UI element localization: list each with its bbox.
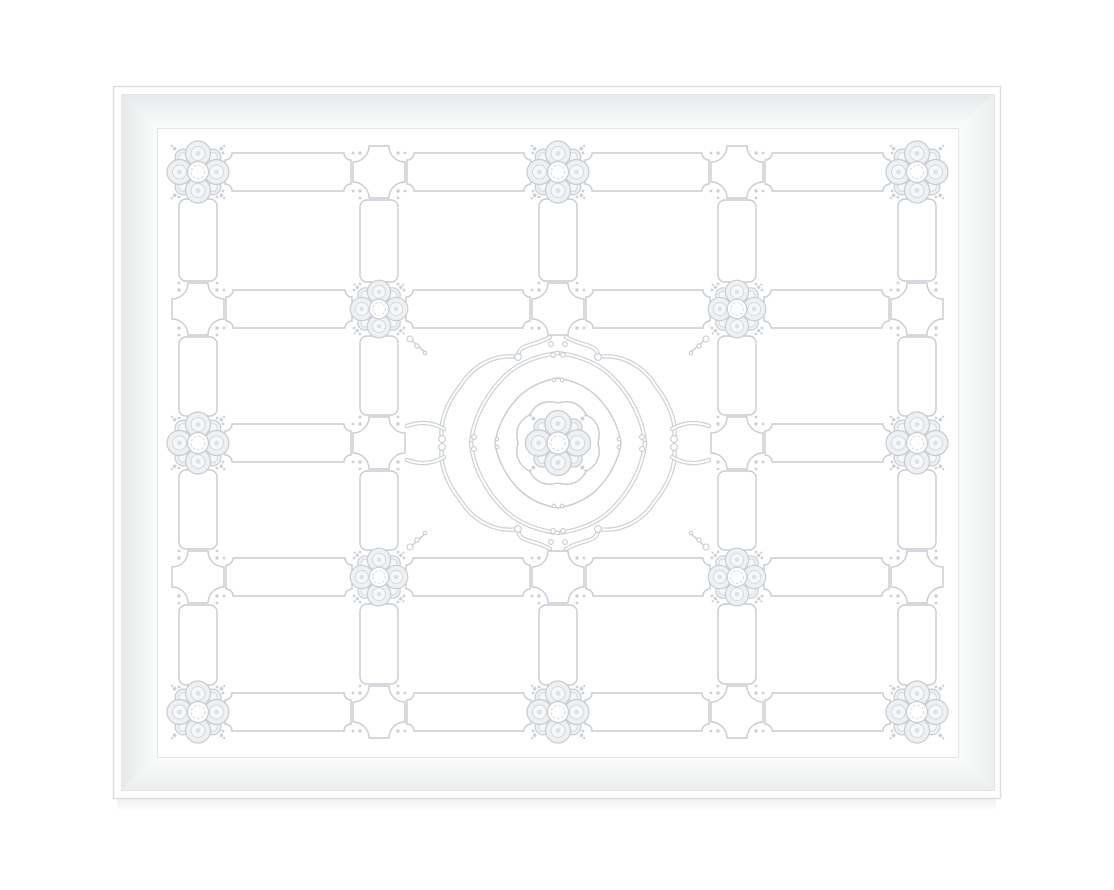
- panel-corner-dot: [359, 685, 362, 688]
- panel-corner-dot: [761, 289, 764, 292]
- panel-corner-dot: [755, 468, 758, 471]
- panel-corner-dot: [353, 289, 356, 292]
- panel-corner-dot: [404, 152, 407, 155]
- panel-horizontal: [765, 693, 890, 731]
- panel-corner-dot: [755, 197, 758, 200]
- panel-corner-dot: [711, 289, 714, 292]
- panel-corner-dot: [711, 327, 714, 330]
- knot-corner-dot: [177, 326, 180, 329]
- knot-corner-dot: [215, 288, 218, 291]
- corner-palmette: [689, 531, 692, 534]
- panel-vertical: [360, 336, 398, 415]
- panel-corner-dot: [531, 557, 534, 560]
- knot-corner-dot: [575, 556, 578, 559]
- panel-corner-dot: [352, 190, 355, 193]
- rosette-petal-dot: [377, 290, 381, 294]
- panel-corner-dot: [890, 327, 893, 330]
- medallion-volute: [551, 529, 556, 534]
- panel-corner-dot: [582, 730, 585, 733]
- panel-corner-dot: [710, 692, 713, 695]
- medallion-volute: [561, 529, 566, 534]
- rosette-petal-dot: [575, 440, 580, 445]
- panel-corner-dot: [352, 461, 355, 464]
- knot-corner-dot: [537, 326, 540, 329]
- rosette-petal-dot: [556, 728, 561, 733]
- panel-corner-dot: [576, 686, 579, 689]
- rosette-small: [707, 279, 768, 340]
- medallion-volute: [551, 353, 556, 358]
- knot-corner-dot: [934, 288, 937, 291]
- panel-corner-dot: [352, 152, 355, 155]
- rosette-petal-dot: [896, 710, 901, 715]
- rosette-petal-dot: [752, 575, 756, 579]
- rosette-petal-dot: [915, 188, 920, 193]
- panel-vertical: [718, 336, 756, 415]
- medallion-volute: [595, 354, 602, 361]
- panel-corner-dot: [717, 333, 720, 336]
- corner-palmette: [407, 544, 413, 550]
- panel-vertical: [718, 604, 756, 684]
- panel-horizontal: [585, 153, 709, 191]
- knot-corner-dot: [754, 189, 757, 192]
- corner-palmette: [689, 351, 692, 354]
- knot-corner-dot: [537, 288, 540, 291]
- panel-corner-dot: [359, 416, 362, 419]
- panel-corner-dot: [222, 692, 225, 695]
- knot-corner-dot: [754, 460, 757, 463]
- panel-corner-dot: [178, 282, 181, 285]
- knot-corner-dot: [896, 594, 899, 597]
- knot-corner-dot: [754, 422, 757, 425]
- medallion-volute: [561, 353, 566, 358]
- rosette-petal-dot: [915, 728, 920, 733]
- rosette-petal-dot: [196, 151, 201, 156]
- medallion-volute: [671, 436, 678, 443]
- medallion-volute: [495, 437, 499, 441]
- medallion-volute: [549, 342, 554, 347]
- panel-corner-dot: [216, 417, 219, 420]
- rosette-petal-dot: [196, 188, 201, 193]
- rosette-petal-dot: [177, 170, 182, 175]
- rosette-petal-dot: [915, 459, 920, 464]
- rosette-petal-dot: [394, 575, 398, 579]
- medallion-volute: [515, 354, 522, 361]
- panel-corner-dot: [397, 283, 400, 286]
- knot-corner-dot: [177, 556, 180, 559]
- rosette-petal-dot: [360, 575, 364, 579]
- panel-corner-dot: [178, 467, 181, 470]
- panel-corner-dot: [891, 152, 894, 155]
- panel-corner-dot: [353, 595, 356, 598]
- knot-corner-dot: [575, 288, 578, 291]
- rosette-petal-dot: [718, 307, 722, 311]
- panel-corner-dot: [762, 152, 765, 155]
- medallion-volute: [552, 504, 556, 508]
- panel-corner-dot: [397, 197, 400, 200]
- panel-corner-dot: [891, 190, 894, 193]
- corner-palmette: [415, 538, 419, 542]
- panel-corner-dot: [891, 423, 894, 426]
- rosette-petal-dot: [555, 460, 560, 465]
- rosette-petal-dot: [214, 441, 219, 446]
- panel-corner-dot: [935, 467, 938, 470]
- panel-corner-dot: [359, 601, 362, 604]
- panel-corner-dot: [223, 327, 226, 330]
- panel-corner-dot: [582, 692, 585, 695]
- panel-corner-dot: [404, 190, 407, 193]
- knot-corner-dot: [358, 151, 361, 154]
- panel-corner-dot: [710, 152, 713, 155]
- rosette-petal-dot: [360, 307, 364, 311]
- panel-corner-dot: [717, 416, 720, 419]
- frame-face-bottom: [121, 757, 994, 790]
- medallion-volute: [549, 540, 554, 545]
- knot-corner-dot: [896, 288, 899, 291]
- panel-corner-dot: [897, 467, 900, 470]
- panel-corner-dot: [531, 289, 534, 292]
- panel-corner-dot: [532, 730, 535, 733]
- knot-corner-dot: [934, 556, 937, 559]
- rosette-large: [165, 139, 230, 204]
- rosette-small: [349, 279, 410, 340]
- rosette-petal-dot: [196, 422, 201, 427]
- panel-corner-dot: [223, 595, 226, 598]
- medallion-volute: [472, 435, 477, 440]
- knot-corner-dot: [396, 691, 399, 694]
- panel-horizontal: [764, 290, 889, 328]
- panel-corner-dot: [935, 550, 938, 553]
- panel-corner-dot: [710, 730, 713, 733]
- panel-vertical: [179, 199, 217, 281]
- rosette-petal-dot: [214, 170, 219, 175]
- knot-corner-dot: [177, 288, 180, 291]
- panel-horizontal: [225, 424, 351, 462]
- rosette-petal-dot: [574, 710, 579, 715]
- panel-corner-dot: [762, 461, 765, 464]
- panel-corner-dot: [532, 692, 535, 695]
- panel-corner-dot: [538, 686, 541, 689]
- panel-corner-dot: [178, 686, 181, 689]
- rosette-large: [525, 679, 590, 744]
- rosette-center-hole: [907, 702, 928, 723]
- panel-corner-dot: [762, 190, 765, 193]
- rosette-center-hole: [188, 433, 209, 454]
- panel-corner-dot: [583, 327, 586, 330]
- rosette-large: [525, 139, 590, 204]
- rosette-petal-dot: [915, 691, 920, 696]
- knot-corner-dot: [575, 594, 578, 597]
- panel-corner-dot: [178, 417, 181, 420]
- panel-corner-dot: [890, 595, 893, 598]
- panel-corner-dot: [711, 557, 714, 560]
- knot-corner-dot: [537, 594, 540, 597]
- panel-horizontal: [407, 153, 531, 191]
- knot-corner-dot: [934, 326, 937, 329]
- rosette-center-hole: [369, 567, 389, 587]
- panel-vertical: [898, 199, 936, 281]
- panel-vertical: [179, 337, 217, 416]
- knot-corner-dot: [215, 594, 218, 597]
- panel-corner-dot: [538, 196, 541, 199]
- panel-corner-dot: [935, 686, 938, 689]
- panel-vertical: [360, 200, 398, 282]
- medallion-volute: [563, 540, 568, 545]
- knot-corner-dot: [396, 422, 399, 425]
- knot-corner-dot: [934, 594, 937, 597]
- panel-horizontal: [586, 290, 710, 328]
- knot-corner-dot: [716, 729, 719, 732]
- panel-corner-dot: [891, 692, 894, 695]
- medallion-volute: [595, 526, 602, 533]
- knot-corner-dot: [896, 326, 899, 329]
- panel-corner-dot: [397, 551, 400, 554]
- panel-corner-dot: [890, 557, 893, 560]
- panel-vertical: [539, 199, 577, 281]
- panel-vertical: [179, 470, 217, 549]
- medallion-volute: [552, 378, 556, 382]
- rosette-petal-dot: [556, 188, 561, 193]
- corner-palmette: [423, 351, 426, 354]
- rosette-petal-dot: [537, 710, 542, 715]
- framed-ceiling-artwork: [0, 0, 1114, 890]
- corner-palmette: [423, 531, 426, 534]
- knot-corner-dot: [358, 460, 361, 463]
- panel-corner-dot: [583, 595, 586, 598]
- rosette-petal-dot: [574, 170, 579, 175]
- knot-corner-dot: [716, 151, 719, 154]
- rosette-petal-dot: [214, 710, 219, 715]
- panel-corner-dot: [403, 289, 406, 292]
- panel-vertical: [360, 471, 398, 550]
- rosette-petal-dot: [556, 691, 561, 696]
- rosette-center-hole: [548, 702, 569, 723]
- rosette-petal-dot: [394, 307, 398, 311]
- panel-horizontal: [407, 693, 531, 731]
- rosette-center-hole: [369, 299, 389, 319]
- panel-corner-dot: [717, 685, 720, 688]
- panel-corner-dot: [717, 197, 720, 200]
- panel-corner-dot: [352, 730, 355, 733]
- knot-corner-dot: [716, 460, 719, 463]
- panel-corner-dot: [531, 595, 534, 598]
- panel-corner-dot: [404, 692, 407, 695]
- panel-corner-dot: [538, 602, 541, 605]
- panel-corner-dot: [761, 327, 764, 330]
- medallion-volute: [560, 378, 564, 382]
- knot-corner-dot: [754, 151, 757, 154]
- panel-vertical: [898, 605, 936, 685]
- rosette-petal-dot: [735, 290, 739, 294]
- panel-corner-dot: [359, 197, 362, 200]
- panel-horizontal: [406, 290, 530, 328]
- knot-corner-dot: [358, 691, 361, 694]
- knot-corner-dot: [754, 729, 757, 732]
- medallion-volute: [495, 445, 499, 449]
- rosette-petal-dot: [537, 170, 542, 175]
- medallion-volute: [671, 444, 678, 451]
- rosette-center-hole: [727, 567, 747, 587]
- rosette-large: [884, 679, 949, 744]
- rosette-petal-dot: [196, 728, 201, 733]
- panel-corner-dot: [935, 196, 938, 199]
- rosette-petal-dot: [735, 324, 739, 328]
- knot-corner-dot: [896, 556, 899, 559]
- panel-corner-dot: [935, 282, 938, 285]
- artwork-canvas: [0, 0, 1114, 890]
- panel-corner-dot: [717, 283, 720, 286]
- knot-corner-dot: [716, 691, 719, 694]
- frame-drop-shadow: [117, 798, 996, 811]
- panel-horizontal: [585, 693, 709, 731]
- rosette-petal-dot: [735, 592, 739, 596]
- panel-corner-dot: [216, 550, 219, 553]
- panel-vertical: [718, 200, 756, 282]
- knot-corner-dot: [396, 189, 399, 192]
- panel-corner-dot: [397, 601, 400, 604]
- panel-corner-dot: [216, 602, 219, 605]
- panel-corner-dot: [178, 602, 181, 605]
- panel-corner-dot: [178, 196, 181, 199]
- panel-corner-dot: [576, 282, 579, 285]
- panel-corner-dot: [532, 152, 535, 155]
- panel-corner-dot: [222, 730, 225, 733]
- panel-corner-dot: [583, 289, 586, 292]
- panel-corner-dot: [403, 557, 406, 560]
- rosette-petal-dot: [377, 558, 381, 562]
- knot-corner-dot: [575, 326, 578, 329]
- panel-corner-dot: [353, 557, 356, 560]
- rosette-petal-dot: [196, 691, 201, 696]
- knot-corner-dot: [358, 729, 361, 732]
- panel-corner-dot: [755, 601, 758, 604]
- panel-corner-dot: [755, 283, 758, 286]
- rosette-petal-dot: [718, 575, 722, 579]
- panel-vertical: [718, 471, 756, 550]
- panel-corner-dot: [935, 602, 938, 605]
- rosette-petal-dot: [915, 422, 920, 427]
- panel-corner-dot: [397, 468, 400, 471]
- knot-corner-dot: [215, 556, 218, 559]
- panel-corner-dot: [582, 190, 585, 193]
- rosette-center-hole: [907, 433, 928, 454]
- rosette-petal-dot: [896, 441, 901, 446]
- rosette-large: [884, 139, 949, 204]
- panel-corner-dot: [352, 423, 355, 426]
- panel-vertical: [898, 470, 936, 549]
- panel-corner-dot: [897, 550, 900, 553]
- panel-corner-dot: [762, 730, 765, 733]
- corner-palmette: [703, 544, 709, 550]
- panel-corner-dot: [223, 289, 226, 292]
- rosette-petal-dot: [933, 170, 938, 175]
- panel-corner-dot: [755, 333, 758, 336]
- rosette-petal-dot: [177, 441, 182, 446]
- rosette-center-hole: [727, 299, 747, 319]
- medallion-volute: [560, 504, 564, 508]
- panel-corner-dot: [359, 283, 362, 286]
- panel-corner-dot: [755, 551, 758, 554]
- panel-corner-dot: [216, 196, 219, 199]
- frame-face-left: [121, 94, 157, 790]
- panel-corner-dot: [897, 196, 900, 199]
- medallion-volute: [617, 445, 621, 449]
- panel-corner-dot: [762, 423, 765, 426]
- knot-corner-dot: [716, 422, 719, 425]
- panel-corner-dot: [403, 327, 406, 330]
- panel-corner-dot: [711, 595, 714, 598]
- panel-vertical: [539, 605, 577, 685]
- panel-corner-dot: [761, 595, 764, 598]
- panel-corner-dot: [761, 557, 764, 560]
- medallion-volute: [617, 437, 621, 441]
- rosette-center-hole: [547, 432, 569, 454]
- panel-corner-dot: [583, 557, 586, 560]
- panel-horizontal: [225, 153, 351, 191]
- knot-corner-dot: [396, 729, 399, 732]
- knot-corner-dot: [396, 151, 399, 154]
- rosette-center-hole: [188, 702, 209, 723]
- panel-vertical: [179, 605, 217, 685]
- rosette-petal-dot: [377, 324, 381, 328]
- panel-corner-dot: [178, 550, 181, 553]
- panel-corner-dot: [891, 730, 894, 733]
- corner-palmette: [407, 336, 413, 342]
- frame-face-top: [121, 94, 994, 128]
- rosette-petal-dot: [536, 440, 541, 445]
- panel-corner-dot: [359, 551, 362, 554]
- panel-corner-dot: [222, 461, 225, 464]
- rosette-small: [349, 547, 410, 608]
- rosette-large: [165, 410, 230, 475]
- panel-corner-dot: [397, 416, 400, 419]
- panel-corner-dot: [222, 190, 225, 193]
- panel-corner-dot: [397, 333, 400, 336]
- panel-corner-dot: [897, 602, 900, 605]
- panel-horizontal: [225, 693, 351, 731]
- knot-corner-dot: [358, 189, 361, 192]
- panel-horizontal: [765, 153, 890, 191]
- panel-corner-dot: [531, 327, 534, 330]
- panel-corner-dot: [935, 417, 938, 420]
- medallion-volute: [563, 342, 568, 347]
- rosette-petal-dot: [896, 170, 901, 175]
- panel-corner-dot: [538, 282, 541, 285]
- knot-corner-dot: [716, 189, 719, 192]
- medallion-volute: [439, 436, 446, 443]
- knot-corner-dot: [215, 326, 218, 329]
- medallion-volute: [472, 447, 477, 452]
- panel-corner-dot: [897, 686, 900, 689]
- panel-corner-dot: [216, 686, 219, 689]
- panel-corner-dot: [576, 602, 579, 605]
- knot-corner-dot: [754, 691, 757, 694]
- panel-corner-dot: [178, 334, 181, 337]
- corner-palmette: [703, 336, 709, 342]
- rosette-petal-dot: [556, 151, 561, 156]
- panel-corner-dot: [582, 152, 585, 155]
- medallion-volute: [515, 526, 522, 533]
- panel-corner-dot: [222, 152, 225, 155]
- rosette-petal-dot: [177, 710, 182, 715]
- corner-palmette: [697, 538, 701, 542]
- panel-corner-dot: [403, 595, 406, 598]
- rosette-small: [707, 547, 768, 608]
- panel-horizontal: [226, 558, 352, 596]
- corner-palmette: [415, 344, 419, 348]
- panel-corner-dot: [935, 334, 938, 337]
- panel-corner-dot: [717, 468, 720, 471]
- medallion-volute: [640, 447, 645, 452]
